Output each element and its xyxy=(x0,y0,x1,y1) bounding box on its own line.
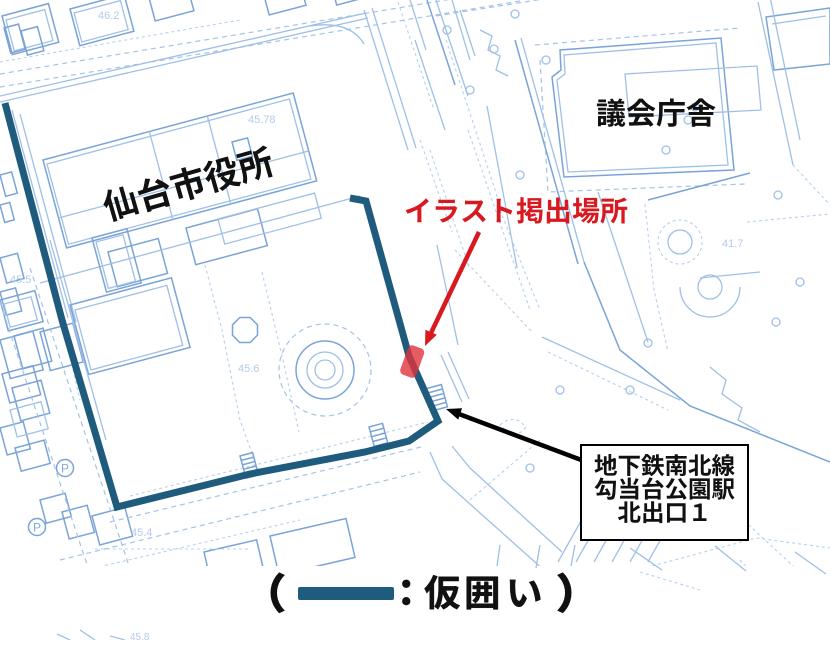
svg-text:41.7: 41.7 xyxy=(722,238,743,250)
svg-text:45.6: 45.6 xyxy=(238,363,259,375)
svg-text:45.4: 45.4 xyxy=(131,527,152,539)
svg-text:45.5: 45.5 xyxy=(10,274,31,286)
svg-text:46.2: 46.2 xyxy=(98,10,119,22)
svg-text:P: P xyxy=(33,521,41,535)
svg-text:P: P xyxy=(61,462,69,476)
svg-text:45.8: 45.8 xyxy=(130,632,150,640)
svg-text:45.78: 45.78 xyxy=(248,114,276,126)
